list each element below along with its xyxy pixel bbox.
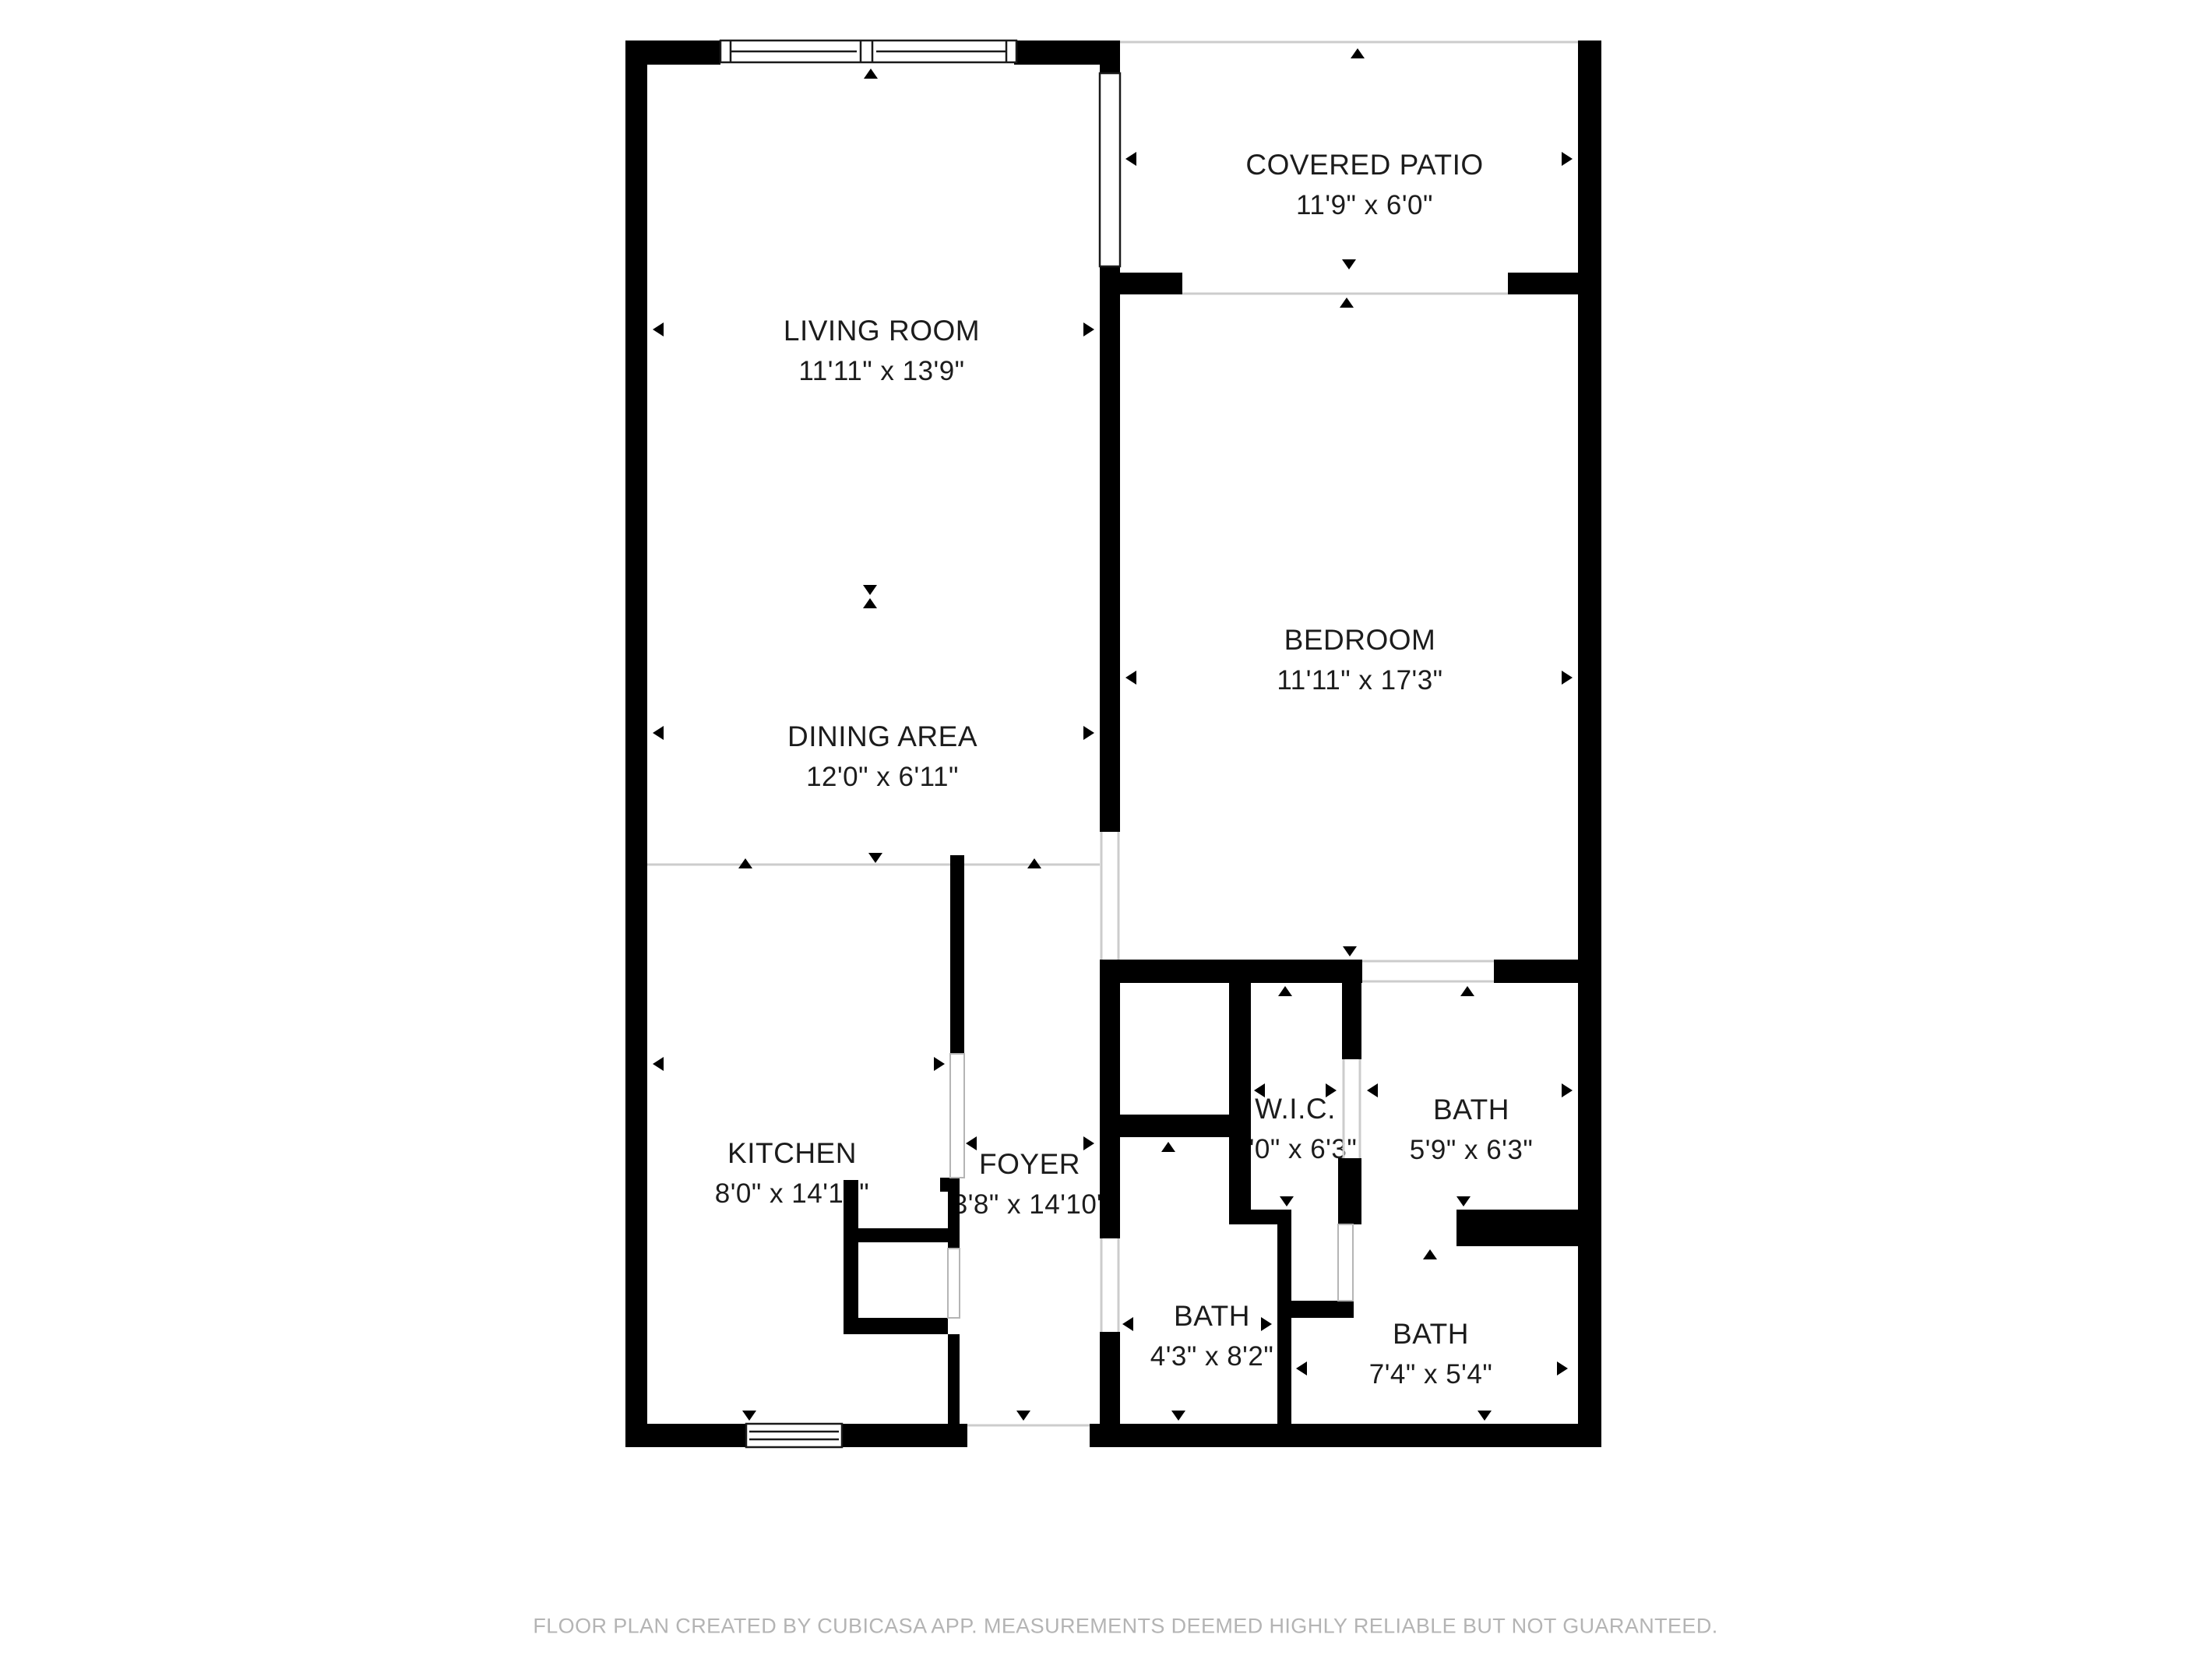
room-name: BATH: [1150, 1296, 1274, 1337]
room-labels-layer: COVERED PATIO 11'9" x 6'0" LIVING ROOM 1…: [0, 0, 2212, 1659]
room-dimensions: 11'11" x 13'9": [784, 351, 980, 392]
room-dimensions: 11'11" x 17'3": [1277, 660, 1442, 701]
floor-plan: COVERED PATIO 11'9" x 6'0" LIVING ROOM 1…: [0, 0, 2212, 1659]
room-name: W.I.C.: [1234, 1089, 1358, 1129]
room-dimensions: 4'3" x 8'2": [1150, 1337, 1274, 1377]
room-label-walk-in-closet: W.I.C. 3'0" x 6'3": [1234, 1089, 1358, 1170]
room-name: LIVING ROOM: [784, 311, 980, 351]
room-dimensions: 7'4" x 5'4": [1369, 1354, 1493, 1395]
room-name: BATH: [1369, 1314, 1493, 1354]
room-label-living-room: LIVING ROOM 11'11" x 13'9": [784, 311, 980, 392]
room-name: COVERED PATIO: [1245, 145, 1483, 185]
room-name: BEDROOM: [1277, 620, 1442, 660]
room-label-kitchen: KITCHEN 8'0" x 14'10": [715, 1133, 869, 1214]
room-dimensions: 5'9" x 6'3": [1410, 1130, 1534, 1171]
room-name: DINING AREA: [787, 717, 977, 757]
room-dimensions: 3'8" x 14'10": [953, 1185, 1107, 1225]
room-dimensions: 8'0" x 14'10": [715, 1174, 869, 1214]
room-label-bath-wc: BATH 7'4" x 5'4": [1369, 1314, 1493, 1395]
room-label-bedroom: BEDROOM 11'11" x 17'3": [1277, 620, 1442, 701]
room-name: FOYER: [953, 1144, 1107, 1185]
room-label-bath-ensuite: BATH 5'9" x 6'3": [1410, 1090, 1534, 1171]
room-dimensions: 11'9" x 6'0": [1245, 185, 1483, 226]
room-label-bath-hall: BATH 4'3" x 8'2": [1150, 1296, 1274, 1377]
disclaimer-text: FLOOR PLAN CREATED BY CUBICASA APP. MEAS…: [533, 1615, 1717, 1639]
room-label-foyer: FOYER 3'8" x 14'10": [953, 1144, 1107, 1225]
room-name: KITCHEN: [715, 1133, 869, 1174]
room-label-dining-area: DINING AREA 12'0" x 6'11": [787, 717, 977, 798]
room-dimensions: 12'0" x 6'11": [787, 757, 977, 798]
room-name: BATH: [1410, 1090, 1534, 1130]
room-label-covered-patio: COVERED PATIO 11'9" x 6'0": [1245, 145, 1483, 226]
room-dimensions: 3'0" x 6'3": [1234, 1129, 1358, 1170]
